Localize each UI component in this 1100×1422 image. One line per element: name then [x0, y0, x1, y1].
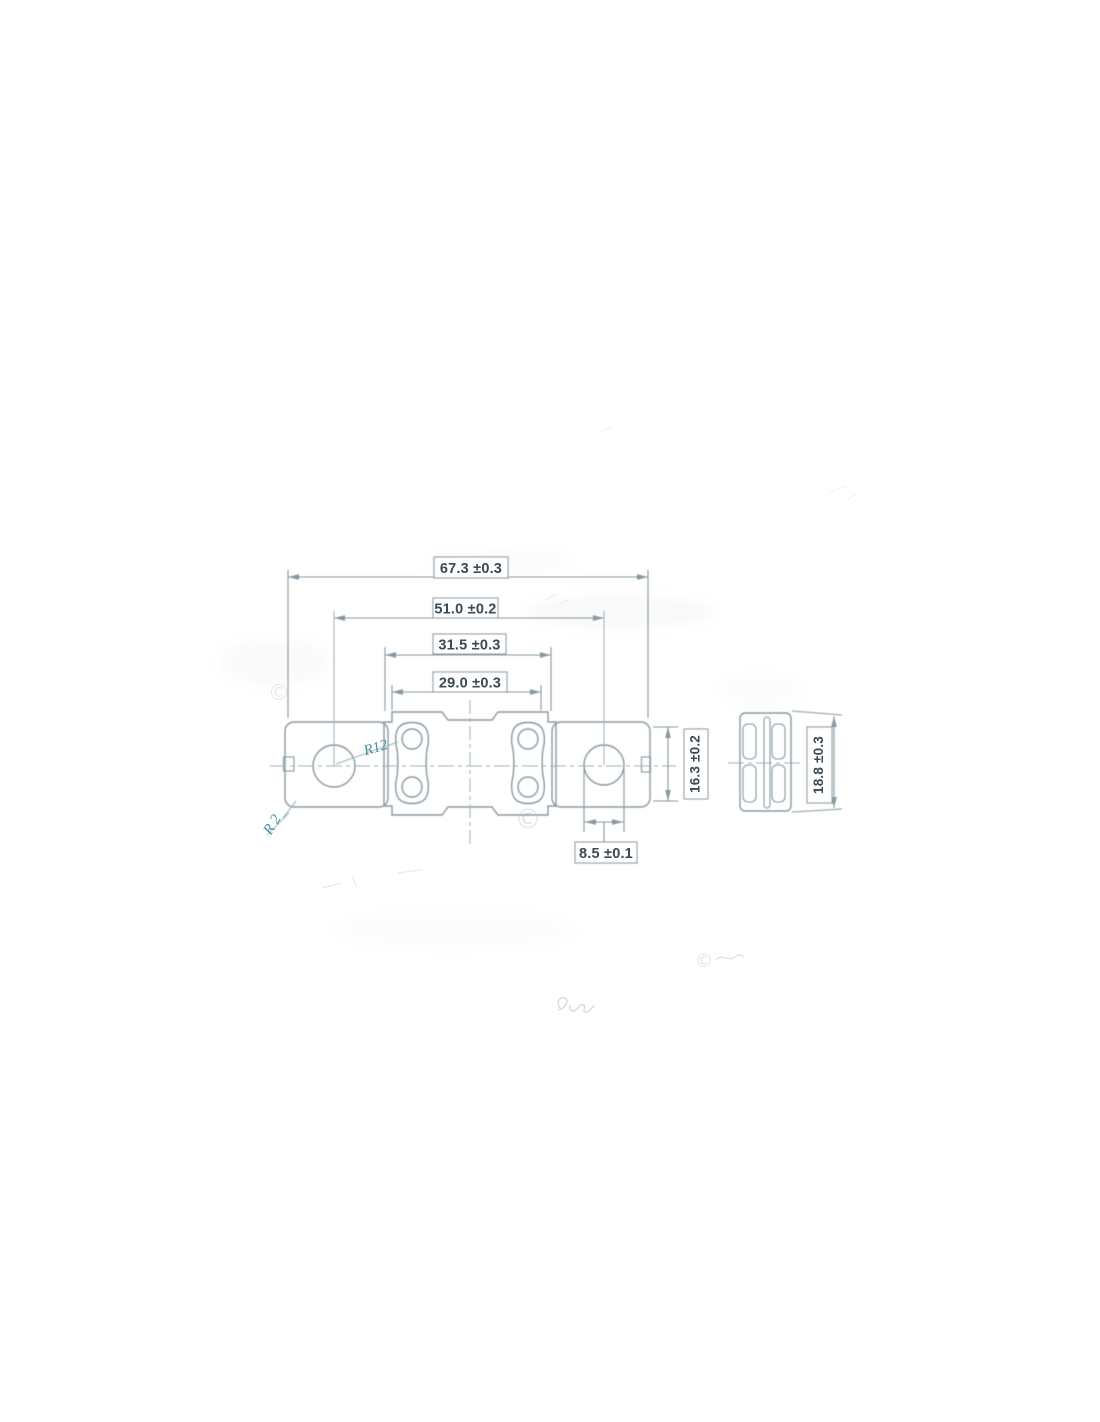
- rivet-hole: [518, 777, 538, 797]
- dim-center-outer-width: 31.5 ±0.3: [438, 638, 500, 654]
- right-dogbone-window: [512, 723, 545, 804]
- radius-callout-r12: R12: [361, 737, 390, 760]
- squiggle: [716, 955, 744, 960]
- pencil-marks: [322, 870, 421, 888]
- side-view-body: [740, 713, 791, 811]
- dim-overall-length: 67.3 ±0.3: [440, 561, 502, 577]
- left-terminal-cap: [285, 722, 388, 807]
- side-slot: [772, 724, 785, 759]
- dim-side-overall-height: 18.8 ±0.3: [811, 736, 826, 794]
- signature-scribble: [558, 998, 594, 1012]
- rivet-hole: [402, 729, 422, 749]
- scan-artifact-fog: [220, 551, 800, 946]
- r2-leader: [283, 801, 296, 818]
- ext-line: [792, 711, 842, 715]
- copyright-watermark: ©: [268, 681, 290, 706]
- dim-hole-center-spacing: 51.0 ±0.2: [434, 602, 496, 618]
- right-terminal-cap: [552, 722, 650, 807]
- side-slot: [743, 765, 756, 802]
- copyright-watermark: ©: [695, 950, 714, 972]
- side-slot: [743, 724, 756, 759]
- fuse-dimension-drawing: 67.3 ±0.3 51.0 ±0.2 31.5 ±0.3 29.0 ±0.3 …: [0, 0, 1100, 1422]
- dim-mounting-hole-diameter: 8.5 ±0.1: [579, 846, 633, 862]
- side-view: [740, 713, 791, 811]
- dim-center-inner-width: 29.0 ±0.3: [439, 676, 501, 692]
- rivet-hole: [402, 777, 422, 797]
- rivet-hole: [518, 729, 538, 749]
- ghost-marks: [830, 486, 857, 499]
- ghost-marks: [598, 427, 612, 432]
- copyright-watermark: ©: [515, 804, 542, 835]
- dim-terminal-height: 16.3 ±0.2: [688, 735, 703, 793]
- radius-callout-r2: R 2: [260, 812, 285, 839]
- ext-line: [792, 809, 842, 812]
- scanned-technical-drawing-page: 67.3 ±0.3 51.0 ±0.2 31.5 ±0.3 29.0 ±0.3 …: [0, 0, 1100, 1422]
- side-slot: [772, 765, 785, 802]
- right-edge-notch: [642, 757, 651, 772]
- left-dogbone-window: [396, 723, 429, 804]
